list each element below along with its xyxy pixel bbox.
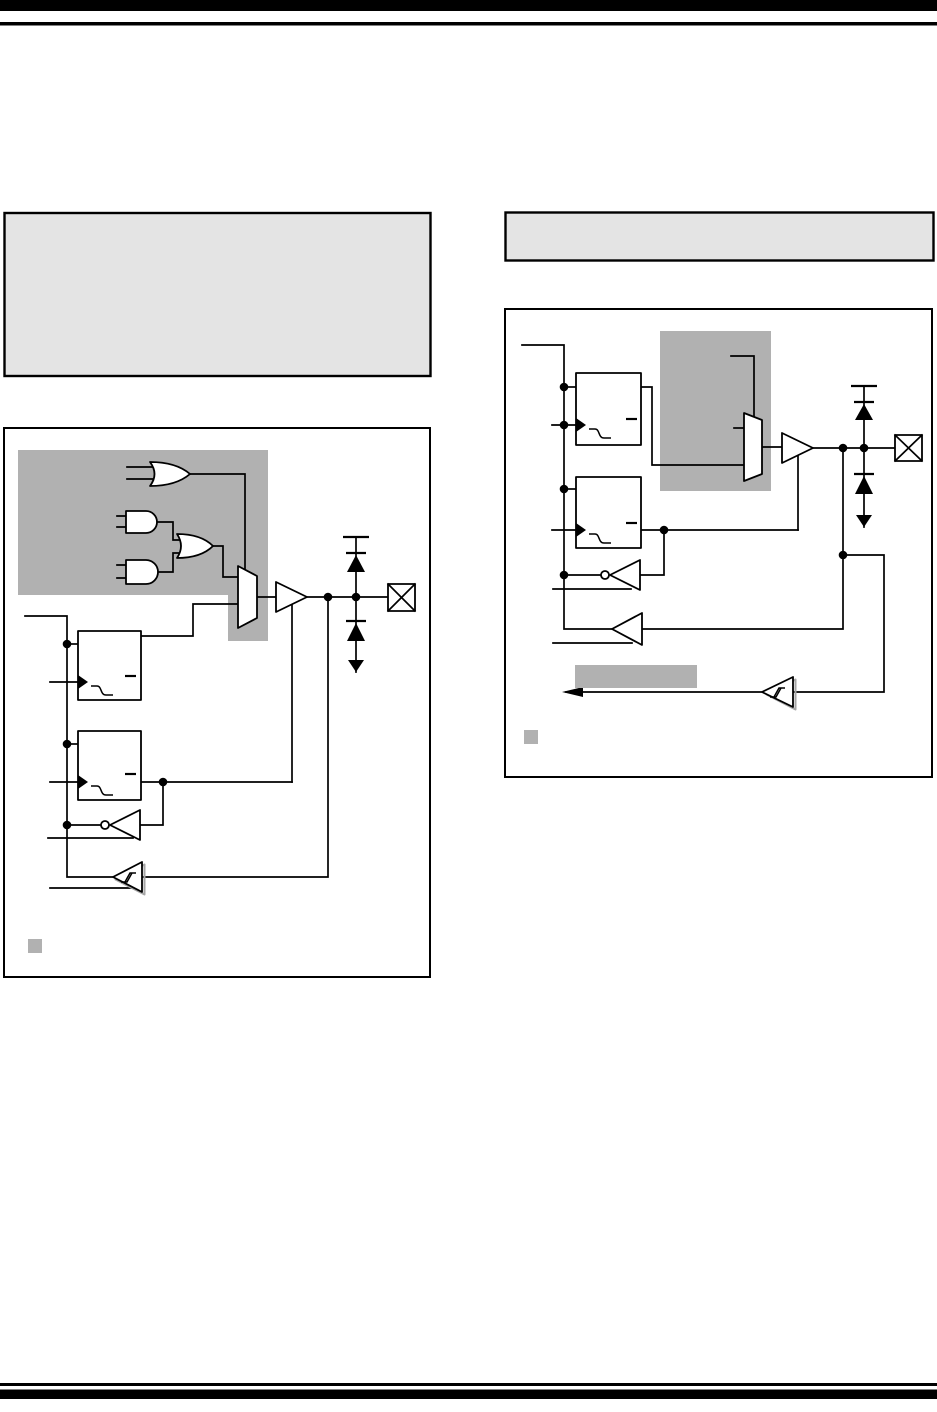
protection-diodes <box>343 537 369 672</box>
junction-dot <box>352 593 361 602</box>
data-latch <box>576 373 641 445</box>
note-marker <box>524 730 538 744</box>
junction-dot <box>63 740 72 749</box>
schmitt-trigger-buffer <box>762 677 796 710</box>
bottom-thick-rule <box>0 1390 937 1400</box>
figure-left-block-diagram <box>4 428 430 977</box>
and-gate-icon <box>126 511 157 533</box>
junction-dot <box>839 444 848 453</box>
inverting-buffer <box>101 810 140 840</box>
highlight-bar <box>575 665 697 688</box>
vss-arrow-icon <box>348 660 364 672</box>
header-box-right <box>506 213 934 261</box>
io-pad <box>895 435 922 461</box>
junction-dot <box>839 551 848 560</box>
junction-dot <box>560 383 569 392</box>
datasheet-page <box>0 0 937 1412</box>
inverter-triangle-icon <box>610 560 640 590</box>
mux-icon <box>744 413 762 481</box>
latch-box <box>78 631 141 700</box>
top-thin-rule <box>0 22 937 26</box>
schmitt-trigger-buffer <box>113 862 145 895</box>
data-latch <box>78 631 141 700</box>
junction-dot <box>560 485 569 494</box>
junction-dot <box>324 593 333 602</box>
top-thick-rule <box>0 0 937 11</box>
vdd-diode-icon <box>347 555 365 572</box>
junction-dot <box>860 444 869 453</box>
mux-icon <box>238 566 257 628</box>
bottom-thin-rule <box>0 1383 937 1386</box>
figure-right-block-diagram <box>505 309 932 777</box>
and-gate-icon <box>126 560 158 584</box>
vdd-diode-icon <box>855 404 873 420</box>
inverting-buffer <box>601 560 640 590</box>
latch-box <box>78 731 141 800</box>
latch-box <box>576 373 641 445</box>
note-marker <box>28 939 42 953</box>
buffer-triangle-icon <box>612 613 642 645</box>
junction-dot <box>63 640 72 649</box>
wire <box>140 782 163 825</box>
junction-dot <box>660 526 669 535</box>
latch-box <box>576 477 641 548</box>
io-pad <box>388 584 415 611</box>
vss-diode-icon <box>347 623 365 641</box>
junction-dot <box>560 421 569 430</box>
inverter-triangle-icon <box>110 810 140 840</box>
wire <box>640 530 664 575</box>
inversion-bubble-icon <box>101 821 109 829</box>
header-box-left <box>5 213 431 376</box>
tris-latch <box>576 477 641 548</box>
junction-dot <box>63 821 72 830</box>
junction-dot <box>560 571 569 580</box>
wire <box>141 604 238 636</box>
vss-diode-icon <box>855 476 873 494</box>
junction-dot <box>159 778 168 787</box>
inversion-bubble-icon <box>601 571 609 579</box>
bus-arrowhead-icon <box>562 687 583 697</box>
protection-diodes <box>851 386 877 527</box>
tris-latch <box>78 731 141 800</box>
page-canvas <box>0 0 937 1412</box>
read-path-wire <box>793 555 884 692</box>
vss-arrow-icon <box>856 515 872 527</box>
